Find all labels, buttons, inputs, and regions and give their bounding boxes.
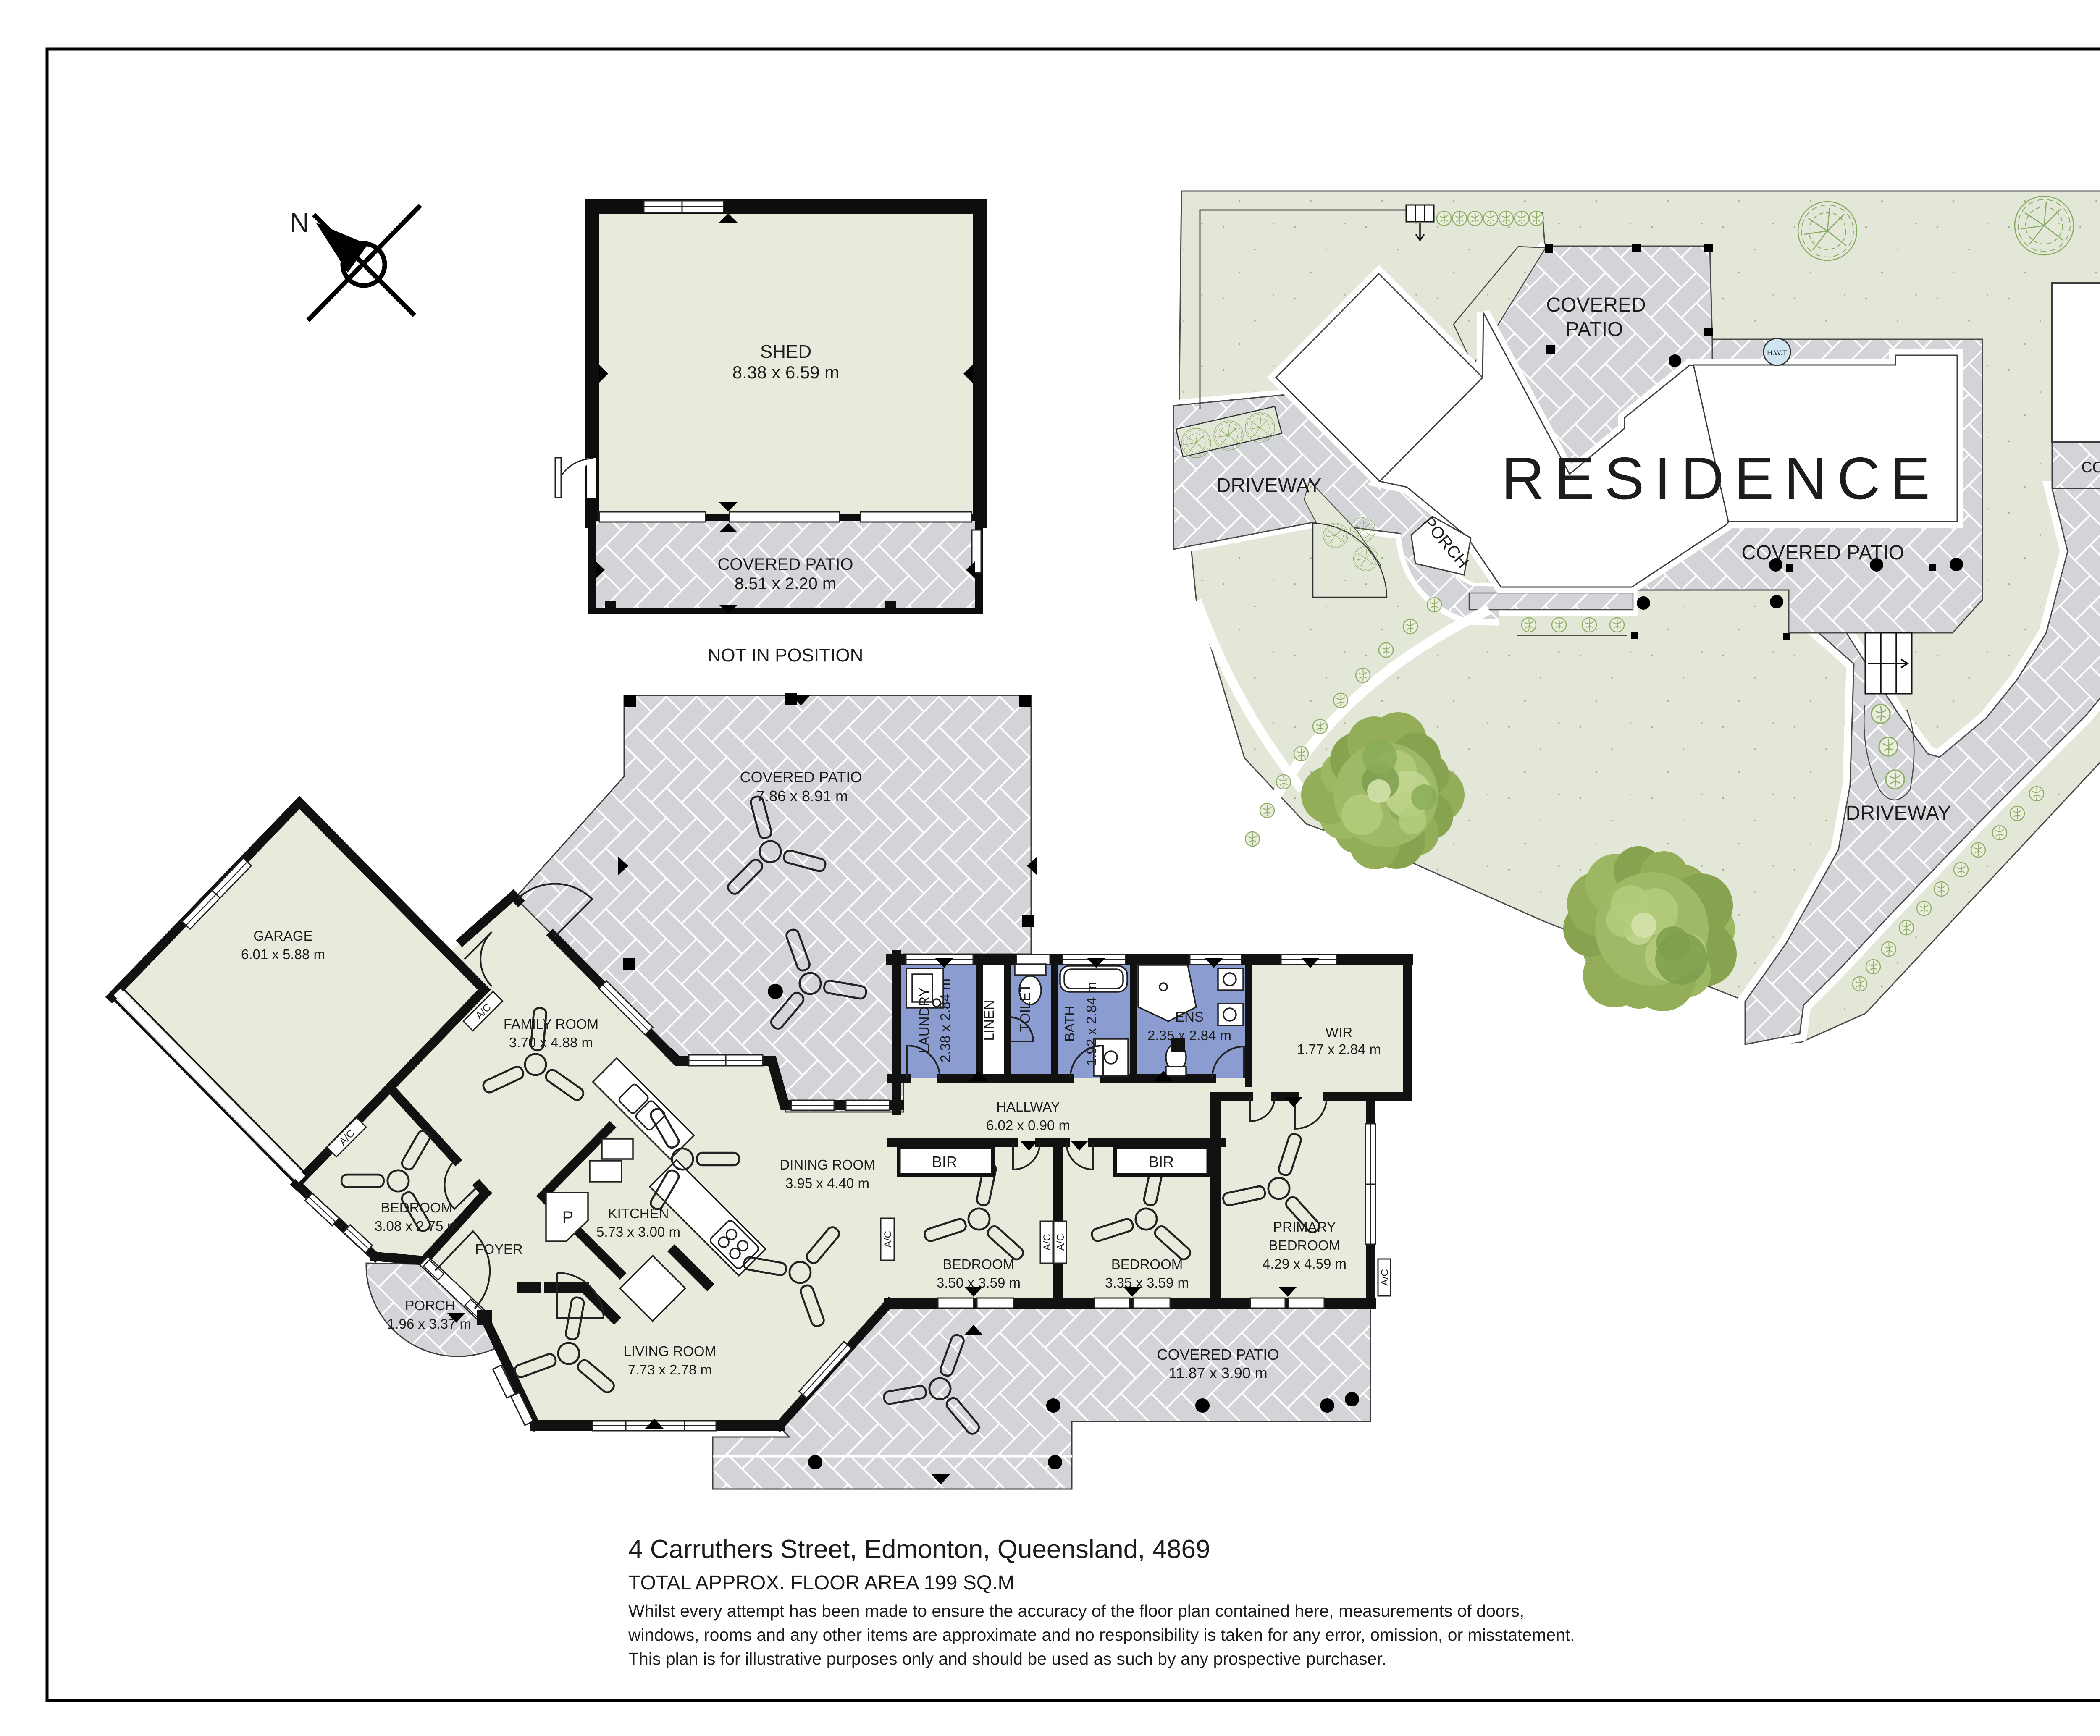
svg-text:11.87 x 3.90 m: 11.87 x 3.90 m [1168, 1364, 1267, 1382]
svg-text:COVERED PATIO: COVERED PATIO [717, 555, 853, 574]
svg-text:6.01 x 5.88 m: 6.01 x 5.88 m [241, 947, 325, 962]
svg-text:3.50 x 3.59 m: 3.50 x 3.59 m [937, 1275, 1021, 1290]
svg-text:7.86 x 8.91 m: 7.86 x 8.91 m [756, 787, 848, 805]
svg-text:A/C: A/C [1042, 1234, 1053, 1251]
svg-text:BIR: BIR [1149, 1153, 1174, 1170]
svg-text:6.02 x 0.90 m: 6.02 x 0.90 m [986, 1117, 1070, 1133]
svg-text:COVERED PATIO: COVERED PATIO [2082, 459, 2100, 476]
svg-text:8.51 x 2.20 m: 8.51 x 2.20 m [735, 574, 836, 593]
svg-text:TOTAL APPROX. FLOOR AREA 199 S: TOTAL APPROX. FLOOR AREA 199 SQ.M [628, 1572, 1014, 1594]
svg-text:NOT IN POSITION: NOT IN POSITION [708, 645, 864, 666]
svg-text:H.W.T: H.W.T [1767, 349, 1787, 357]
svg-text:PATIO: PATIO [1566, 318, 1623, 341]
svg-text:COVERED PATIO: COVERED PATIO [1157, 1346, 1279, 1363]
svg-text:8.38 x 6.59 m: 8.38 x 6.59 m [732, 362, 839, 382]
svg-text:3.35 x 3.59 m: 3.35 x 3.59 m [1105, 1275, 1189, 1290]
svg-text:P: P [562, 1208, 574, 1227]
svg-text:3.08 x 2.75 m: 3.08 x 2.75 m [375, 1218, 459, 1234]
svg-text:BEDROOM: BEDROOM [943, 1256, 1015, 1272]
svg-text:FAMILY ROOM: FAMILY ROOM [504, 1016, 598, 1032]
svg-text:DINING ROOM: DINING ROOM [780, 1157, 875, 1172]
svg-text:windows, rooms and any other i: windows, rooms and any other items are a… [628, 1625, 1575, 1644]
svg-text:A/C: A/C [882, 1231, 894, 1248]
svg-text:KITCHEN: KITCHEN [608, 1206, 669, 1221]
svg-text:A/C: A/C [1379, 1269, 1391, 1286]
svg-text:SHED: SHED [760, 341, 811, 362]
svg-text:COVERED PATIO: COVERED PATIO [1741, 542, 1904, 564]
svg-text:DRIVEWAY: DRIVEWAY [1846, 802, 1951, 824]
svg-text:COVERED: COVERED [1546, 294, 1646, 316]
svg-text:2.38 x 2.84 m: 2.38 x 2.84 m [937, 978, 953, 1062]
svg-text:This plan is for illustrative: This plan is for illustrative purposes o… [628, 1649, 1386, 1668]
svg-text:N: N [290, 207, 309, 238]
svg-text:BATH: BATH [1062, 1006, 1077, 1042]
svg-text:1.92 x 2.84 m: 1.92 x 2.84 m [1084, 982, 1099, 1066]
svg-text:COVERED PATIO: COVERED PATIO [740, 768, 862, 786]
svg-text:LAUNDRY: LAUNDRY [916, 987, 932, 1053]
svg-text:2.35 x 2.84 m: 2.35 x 2.84 m [1147, 1028, 1231, 1043]
svg-text:Whilst every attempt has been: Whilst every attempt has been made to en… [628, 1601, 1524, 1621]
svg-text:4.29 x 4.59 m: 4.29 x 4.59 m [1263, 1256, 1347, 1272]
svg-text:WIR: WIR [1326, 1025, 1352, 1040]
svg-text:BEDROOM: BEDROOM [381, 1200, 453, 1215]
svg-text:1.77 x 2.84 m: 1.77 x 2.84 m [1297, 1041, 1381, 1057]
svg-text:3.70 x 4.88 m: 3.70 x 4.88 m [509, 1035, 593, 1050]
svg-text:LINEN: LINEN [981, 1000, 997, 1041]
svg-text:BEDROOM: BEDROOM [1269, 1238, 1341, 1253]
svg-text:BIR: BIR [932, 1153, 957, 1170]
svg-text:GARAGE: GARAGE [253, 928, 312, 944]
svg-text:PORCH: PORCH [405, 1298, 455, 1313]
svg-text:1.96 x 3.37 m: 1.96 x 3.37 m [387, 1316, 471, 1332]
svg-text:5.73 x 3.00 m: 5.73 x 3.00 m [596, 1224, 680, 1240]
svg-text:DRIVEWAY: DRIVEWAY [1216, 475, 1322, 497]
svg-text:ENS: ENS [1175, 1009, 1204, 1025]
svg-text:PRIMARY: PRIMARY [1273, 1219, 1336, 1235]
svg-text:BEDROOM: BEDROOM [1111, 1256, 1183, 1272]
svg-text:HALLWAY: HALLWAY [996, 1099, 1060, 1115]
svg-text:LIVING ROOM: LIVING ROOM [624, 1343, 716, 1359]
svg-text:4 Carruthers Street, Edmonton,: 4 Carruthers Street, Edmonton, Queenslan… [628, 1535, 1210, 1564]
svg-text:FOYER: FOYER [475, 1241, 523, 1257]
svg-text:RESIDENCE: RESIDENCE [1501, 445, 1940, 512]
svg-text:3.95 x 4.40 m: 3.95 x 4.40 m [785, 1175, 869, 1191]
svg-text:7.73 x 2.78 m: 7.73 x 2.78 m [628, 1362, 712, 1377]
svg-text:TOILET: TOILET [1017, 984, 1033, 1032]
svg-text:A/C: A/C [1055, 1234, 1066, 1251]
